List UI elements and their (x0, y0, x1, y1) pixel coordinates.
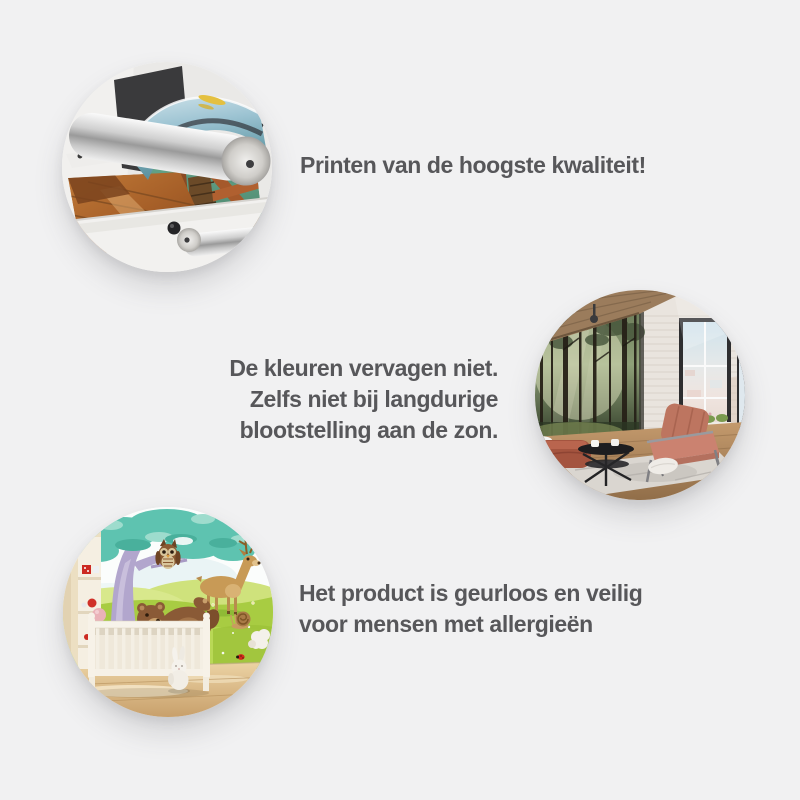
printing-machine-photo (62, 62, 272, 272)
nursery-animal-mural-photo (63, 507, 273, 717)
cup (611, 439, 619, 446)
product-infographic: Printen van de hoogste kwaliteit! (0, 0, 800, 800)
feature-line: voor mensen met allergieën (299, 609, 699, 640)
feature-line: Het product is geurloos en veilig (299, 578, 699, 609)
feature-text-fade-resistant: De kleuren vervagen niet. Zelfs niet bij… (158, 353, 498, 446)
feature-line: Printen van de hoogste kwaliteit! (300, 150, 720, 181)
feature-image-nursery (63, 507, 273, 717)
roller-end-cap (222, 137, 270, 185)
living-room-forest-mural-photo (535, 290, 745, 500)
feature-text-odorless: Het product is geurloos en veilig voor m… (299, 578, 699, 640)
feature-line: Zelfs niet bij langdurige (158, 384, 498, 415)
feature-line: blootstelling aan de zon. (158, 415, 498, 446)
feature-image-living-room (535, 290, 745, 500)
toy (82, 565, 91, 574)
cup (591, 440, 599, 447)
forest-mural (535, 312, 645, 442)
feature-text-print-quality: Printen van de hoogste kwaliteit! (300, 150, 720, 181)
pouf (537, 440, 591, 468)
toy (88, 599, 97, 608)
feature-line: De kleuren vervagen niet. (158, 353, 498, 384)
feature-image-print-machine (62, 62, 272, 272)
